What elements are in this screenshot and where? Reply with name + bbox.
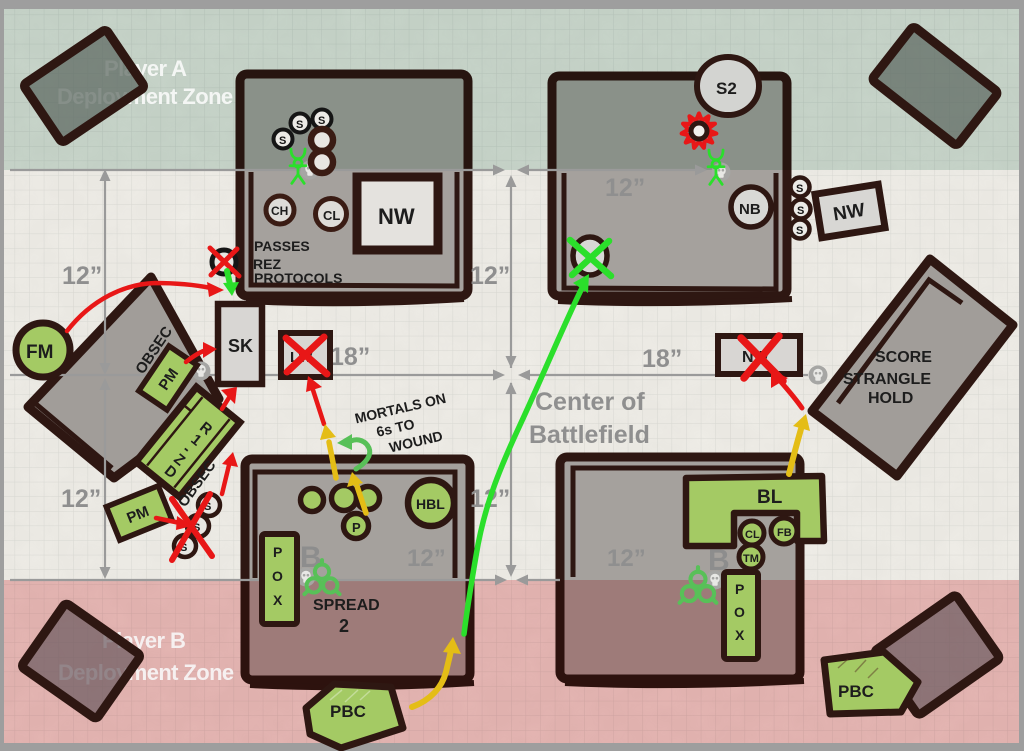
svg-text:P: P <box>352 520 361 535</box>
svg-text:SPREAD: SPREAD <box>313 597 380 614</box>
svg-text:12”: 12” <box>407 545 446 572</box>
svg-text:FM: FM <box>26 342 53 363</box>
svg-text:CL: CL <box>323 208 340 223</box>
svg-text:2: 2 <box>339 616 349 636</box>
svg-text:S: S <box>296 119 303 131</box>
svg-text:12”: 12” <box>61 485 101 513</box>
svg-text:Battlefield: Battlefield <box>529 421 650 449</box>
svg-text:HOLD: HOLD <box>868 390 913 407</box>
svg-text:Center of: Center of <box>535 388 645 416</box>
svg-text:18”: 18” <box>642 345 682 373</box>
svg-text:NB: NB <box>739 201 761 218</box>
svg-text:S2: S2 <box>716 79 737 98</box>
svg-text:NW: NW <box>378 204 415 229</box>
svg-text:12”: 12” <box>470 262 510 290</box>
svg-text:P: P <box>273 544 282 560</box>
svg-text:O: O <box>272 568 283 584</box>
svg-text:S: S <box>796 225 803 237</box>
svg-text:PROTOCOLS: PROTOCOLS <box>254 270 342 286</box>
svg-text:SCORE: SCORE <box>875 349 932 366</box>
svg-text:S: S <box>797 205 804 217</box>
svg-text:O: O <box>734 604 745 620</box>
svg-text:PBC: PBC <box>838 682 874 701</box>
svg-text:CL: CL <box>745 529 760 541</box>
svg-text:S: S <box>318 115 325 127</box>
svg-text:STRANGLE: STRANGLE <box>843 371 931 388</box>
svg-text:12”: 12” <box>605 174 645 202</box>
svg-text:CH: CH <box>271 204 288 218</box>
svg-text:X: X <box>273 592 283 608</box>
svg-text:X: X <box>735 627 745 643</box>
svg-text:S: S <box>279 135 286 147</box>
svg-text:PBC: PBC <box>330 702 366 721</box>
svg-text:BL: BL <box>757 487 783 508</box>
svg-text:12”: 12” <box>607 545 646 572</box>
svg-text:TM: TM <box>743 553 759 565</box>
svg-text:18”: 18” <box>330 343 370 371</box>
svg-text:S: S <box>796 183 803 195</box>
svg-text:HBL: HBL <box>416 496 445 512</box>
svg-text:PASSES: PASSES <box>254 238 310 254</box>
svg-text:12”: 12” <box>62 262 102 290</box>
svg-text:FB: FB <box>777 527 792 539</box>
svg-text:SK: SK <box>228 336 253 356</box>
svg-text:P: P <box>735 581 744 597</box>
